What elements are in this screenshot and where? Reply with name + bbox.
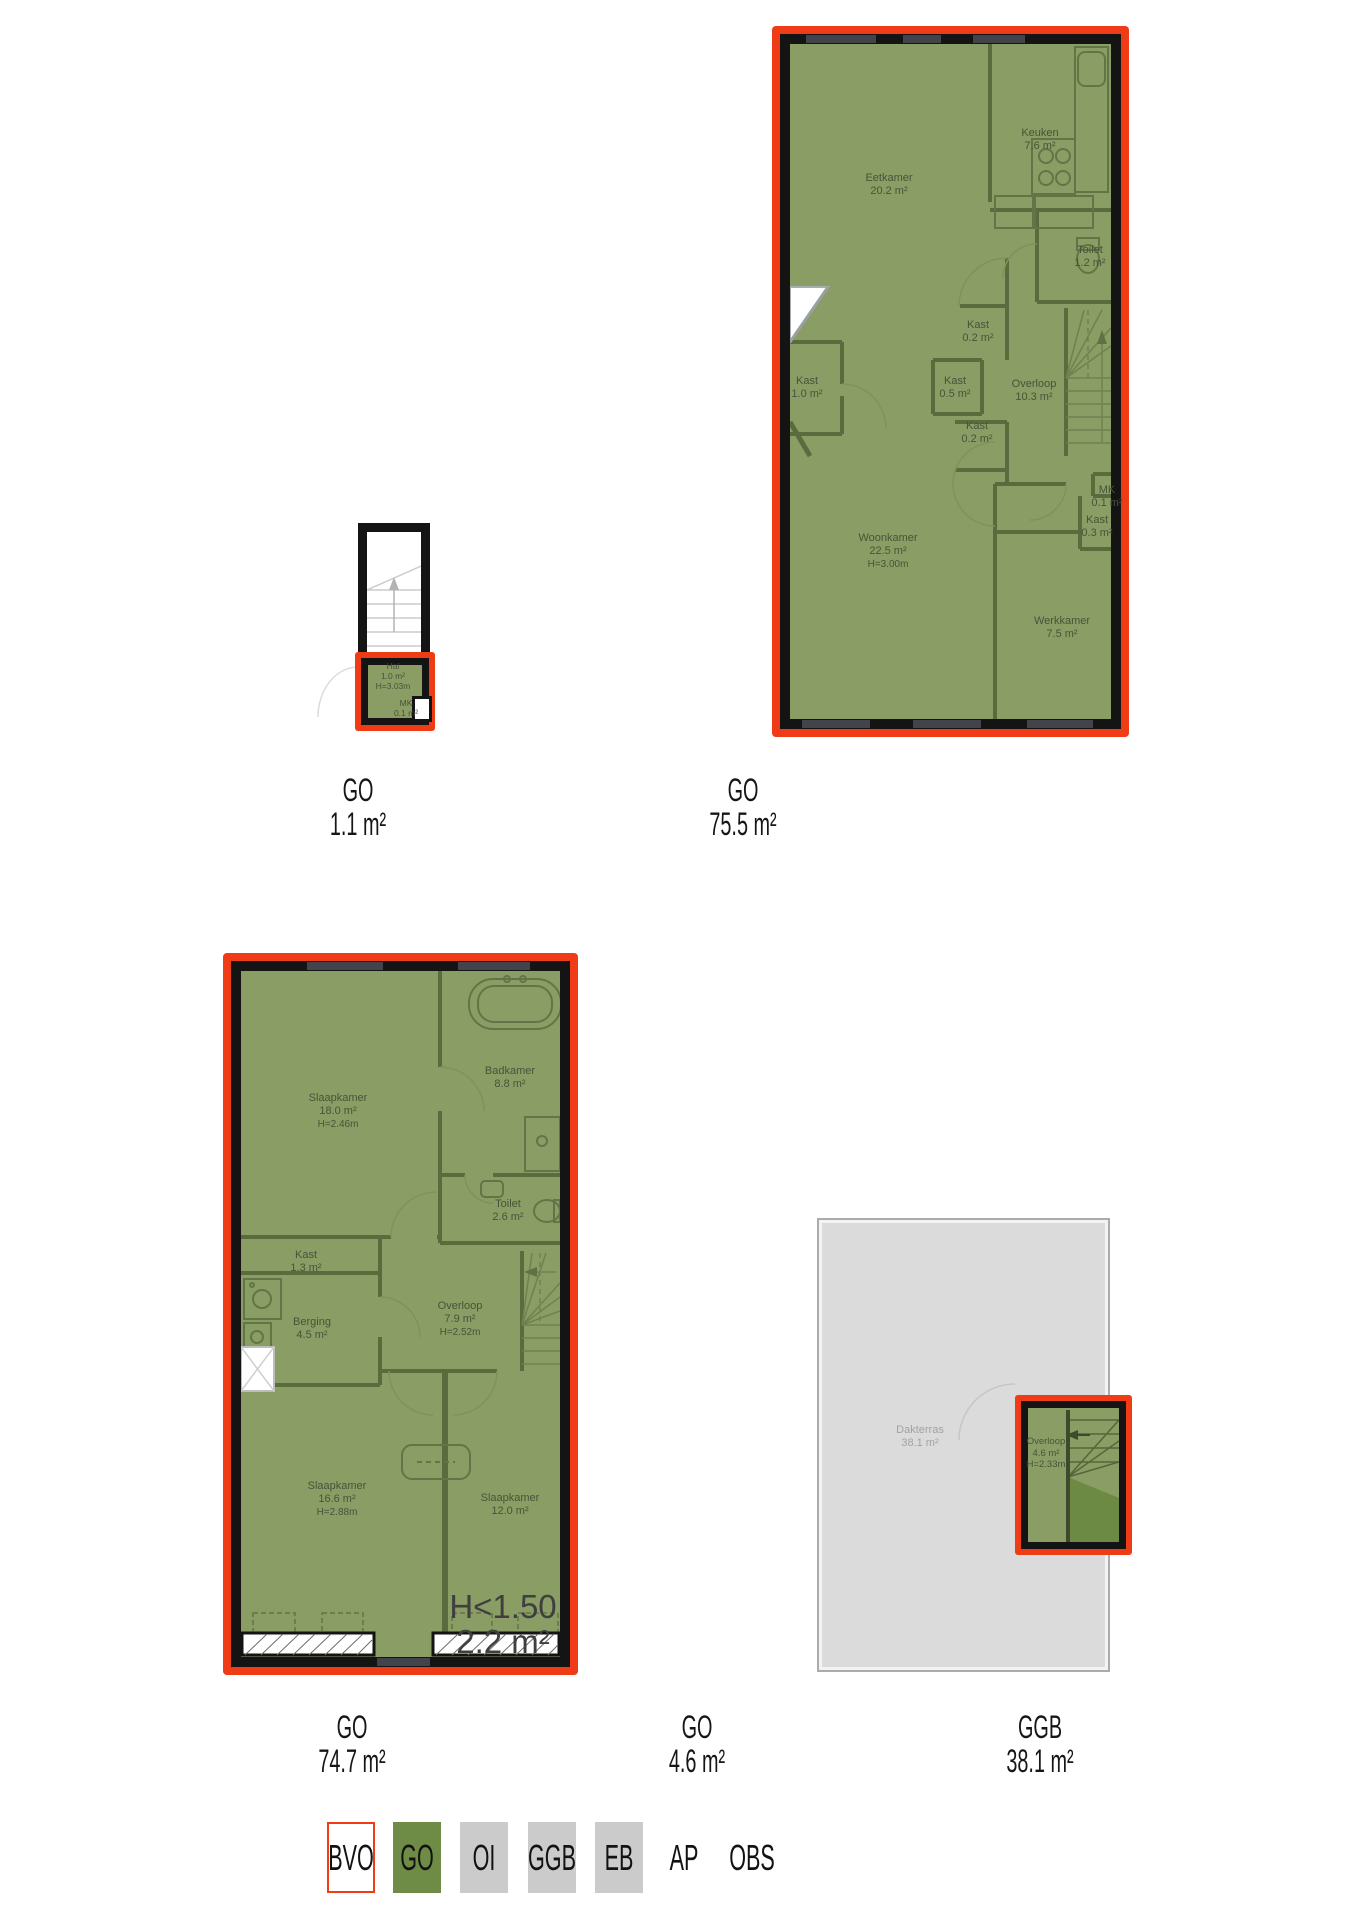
room-label-woonkamer: Woonkamer 22.5 m² H=3.00m xyxy=(808,532,968,571)
room-label-slaapkamer-18: Slaapkamer 18.0 m² H=2.46m xyxy=(258,1092,418,1131)
room-label-kast-03: Kast 0.3 m² xyxy=(1017,514,1177,540)
room-label-kast-02a: Kast 0.2 m² xyxy=(898,319,1058,345)
room-label-kast-02b: Kast 0.2 m² xyxy=(897,420,1057,446)
room-label-overloop-1: Overloop 10.3 m² xyxy=(954,378,1114,404)
room-label-overloop-2: Overloop 7.9 m² H=2.52m xyxy=(380,1300,540,1339)
room-label-kast-10: Kast 1.0 m² xyxy=(727,375,887,401)
window xyxy=(307,962,383,970)
legend-item-eb: EB xyxy=(595,1822,643,1893)
window xyxy=(806,35,876,43)
window xyxy=(802,720,870,728)
room-label-hal-mk: MK 0.1 m² xyxy=(366,698,446,718)
room-label-toilet-2: Toilet 2.6 m² xyxy=(428,1198,588,1224)
room-label-keuken: Keuken 7.6 m² xyxy=(960,127,1120,153)
floorplan-sheet: Hal 1.0 m² H=3.03m MK 0.1 m² Eetkamer 20… xyxy=(0,0,1358,1920)
window xyxy=(1027,720,1093,728)
legend-item-ap: AP xyxy=(655,1822,713,1893)
legend-item-obs: OBS xyxy=(720,1822,784,1893)
area-label-go-roof: GO 4.6 m² xyxy=(597,1710,797,1778)
room-label-slaapkamer-120: Slaapkamer 12.0 m² xyxy=(430,1492,590,1518)
room-label-werkkamer: Werkkamer 7.5 m² xyxy=(982,615,1142,641)
room-label-badkamer: Badkamer 8.8 m² xyxy=(430,1065,590,1091)
area-label-ggb-roof: GGB 38.1 m² xyxy=(940,1710,1140,1778)
legend-item-bvo: BVO xyxy=(327,1822,375,1893)
room-label-hal: Hal 1.0 m² H=3.03m xyxy=(353,661,433,691)
room-label-overloop-roof: Overloop 4.6 m² H=2.33m xyxy=(986,1436,1106,1471)
window xyxy=(377,1658,430,1666)
low-height-label: H<1.50 2.2 m² xyxy=(403,1589,603,1659)
room-label-toilet-1: Toilet 1.2 m² xyxy=(1010,244,1170,270)
legend-item-go: GO xyxy=(393,1822,441,1893)
room-label-dakterras: Dakterras 38.1 m² xyxy=(840,1424,1000,1450)
window xyxy=(458,962,530,970)
area-label-go-first: GO 75.5 m² xyxy=(643,773,843,841)
plan-hal-stairwell xyxy=(358,523,430,663)
plan-roof-overloop xyxy=(1015,1395,1132,1555)
stairwell-stairs-drawing xyxy=(367,532,421,654)
area-label-go-hal: GO 1.1 m² xyxy=(258,773,458,841)
plan-roof-overloop-drawing xyxy=(1028,1408,1119,1542)
room-label-eetkamer: Eetkamer 20.2 m² xyxy=(809,172,969,198)
room-label-mk-1: MK 0.1 m² xyxy=(1027,484,1187,510)
room-label-kast-13: Kast 1.3 m² xyxy=(226,1249,386,1275)
legend-item-ggb: GGB xyxy=(528,1822,576,1893)
room-label-slaapkamer-166: Slaapkamer 16.6 m² H=2.88m xyxy=(257,1480,417,1519)
room-label-berging: Berging 4.5 m² xyxy=(232,1316,392,1342)
window xyxy=(903,35,941,43)
legend-item-oi: OI xyxy=(460,1822,508,1893)
window xyxy=(973,35,1025,43)
area-label-go-second: GO 74.7 m² xyxy=(252,1710,452,1778)
window xyxy=(913,720,981,728)
